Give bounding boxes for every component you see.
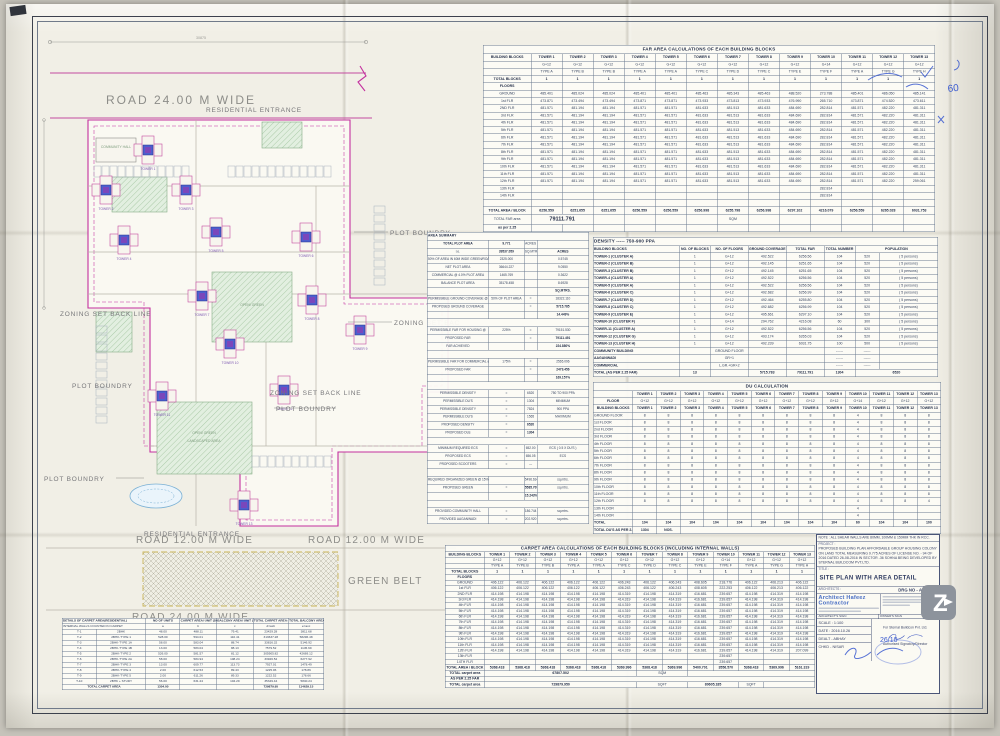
- du-calculation-table-grid: DU CALCULATIONTOWER 1TOWER 2TOWER 3TOWER…: [593, 382, 941, 534]
- svg-text:TOWER 7: TOWER 7: [195, 313, 210, 317]
- svg-text:TOWER 6: TOWER 6: [299, 254, 314, 258]
- architect-address-illegible: [819, 610, 861, 612]
- svg-text:TOWER 5: TOWER 5: [209, 249, 224, 253]
- svg-text:ROAD 12.00 M WIDE: ROAD 12.00 M WIDE: [308, 535, 425, 546]
- dealt-field: DEALT - ABHAY: [817, 635, 871, 643]
- owner-signature: [883, 630, 928, 642]
- residential-entrance-label: RESIDENTIAL ENTRANCE: [206, 107, 302, 114]
- z-logo-stamp: Z: [920, 584, 957, 621]
- road-label-top: ROAD 24.00 M WIDE: [106, 93, 256, 107]
- date-field: DATE : 2016.10.26: [817, 627, 871, 635]
- shear-wall-note: NOTE : ALL SHEAR WALLS ARE 80MM, 100MM &…: [817, 535, 939, 542]
- title-label: TITLE :: [819, 567, 830, 571]
- scanned-drawing-page: { "sheet": { "handwriting": {"mark1": "6…: [0, 0, 1000, 736]
- architects-label: ARCHITECTS :: [819, 587, 842, 592]
- authorised-signatory-line: Authorised Signatory/Director: [873, 643, 938, 647]
- svg-text:COMMUNITY HALL: COMMUNITY HALL: [101, 145, 131, 149]
- du-calculation-table: DU CALCULATIONTOWER 1TOWER 2TOWER 3TOWER…: [593, 382, 941, 534]
- density-table-grid: DENSITY ----- 750-900 PPABUILDING BLOCKS…: [593, 237, 938, 377]
- svg-text:PLOT BOUNDRY: PLOT BOUNDRY: [72, 383, 133, 390]
- architect-sign-label: ARCHITECT'S SIGN: [817, 615, 878, 619]
- architect-name: Architect Hafeez Contractor: [819, 595, 880, 607]
- open-green-label-2: OPEN/ GREEN: [192, 431, 216, 435]
- svg-text:TOWER 9: TOWER 9: [353, 347, 368, 351]
- approval-text-illegible: [883, 602, 922, 604]
- svg-text:TOWER 4: TOWER 4: [117, 257, 132, 261]
- svg-text:TOWER 10: TOWER 10: [222, 361, 239, 365]
- drawing-title: SITE PLAN WITH AREA DETAIL: [820, 574, 938, 581]
- svg-text:PLOT BOUNDRY: PLOT BOUNDRY: [276, 406, 337, 413]
- far-area-table-grid: FAR AREA CALCULATIONS OF EACH BUILDING B…: [483, 45, 935, 232]
- svg-text:TOWER 11: TOWER 11: [154, 413, 171, 417]
- svg-text:TOWER 3: TOWER 3: [179, 207, 194, 211]
- svg-text:TOWER 13: TOWER 13: [236, 522, 253, 526]
- open-green-label: OPEN/ GREEN: [240, 303, 264, 307]
- density-table: DENSITY ----- 750-900 PPABUILDING BLOCKS…: [593, 237, 938, 377]
- approval-text-illegible: [883, 604, 911, 606]
- project-description: PROPOSED BUILDING PLAN AFFORDABLE GROUP …: [819, 547, 938, 565]
- svg-text:RESIDENTIAL ENTRANCE: RESIDENTIAL ENTRANCE: [144, 531, 240, 538]
- dimension-text: 30875: [196, 36, 206, 40]
- far-area-table: FAR AREA CALCULATIONS OF EACH BUILDING B…: [483, 45, 935, 232]
- svg-text:TOWER 2: TOWER 2: [99, 207, 114, 211]
- green-belt-area: [143, 552, 338, 606]
- architect-address-illegible: [819, 608, 880, 610]
- road-break-symbol: [358, 66, 366, 91]
- swimming-pool: [130, 484, 182, 508]
- area-summary-table: AREA SUMMARYTOTAL PLOT AREA9.771ACRESi.e…: [427, 232, 589, 524]
- svg-text:GREEN BELT: GREEN BELT: [348, 576, 423, 587]
- community-hall: COMMUNITY HALL: [96, 138, 136, 162]
- area-summary-table-grid: AREA SUMMARYTOTAL PLOT AREA9.771ACRESi.e…: [427, 232, 589, 524]
- carpet-area-table-grid: CARPET AREA CALCULATIONS OF EACH BUILDIN…: [445, 545, 815, 688]
- svg-text:ZONING SET BACK LINE: ZONING SET BACK LINE: [270, 390, 361, 397]
- carpet-area-table: CARPET AREA CALCULATIONS OF EACH BUILDIN…: [445, 545, 815, 688]
- svg-text:TOWER 1: TOWER 1: [141, 167, 156, 171]
- bottom-roads: ROAD 12.00 M WIDE ROAD 12.00 M WIDE RESI…: [46, 531, 456, 623]
- scale-field: SCALE : 1:100: [817, 619, 871, 627]
- carpet-details-table: DETAILS OF CARPET AREA(RESIDENTIAL)NO OF…: [62, 618, 324, 690]
- carpet-details-table-grid: DETAILS OF CARPET AREA(RESIDENTIAL)NO OF…: [62, 618, 324, 690]
- project-label: PROJECT :: [819, 543, 836, 547]
- svg-text:PLOT BOUNDRY: PLOT BOUNDRY: [44, 476, 105, 483]
- site-plan: 30875 ROAD 24.00 M WIDE RESIDENTIAL ENTR…: [36, 26, 460, 630]
- svg-text:ZONING SET BACK LINE: ZONING SET BACK LINE: [60, 311, 151, 318]
- chkd-field: CHKD - NISAR: [817, 643, 871, 651]
- landscaped-area-label: LANDSCAPED AREA: [188, 439, 222, 443]
- svg-text:TOWER 8: TOWER 8: [305, 317, 320, 321]
